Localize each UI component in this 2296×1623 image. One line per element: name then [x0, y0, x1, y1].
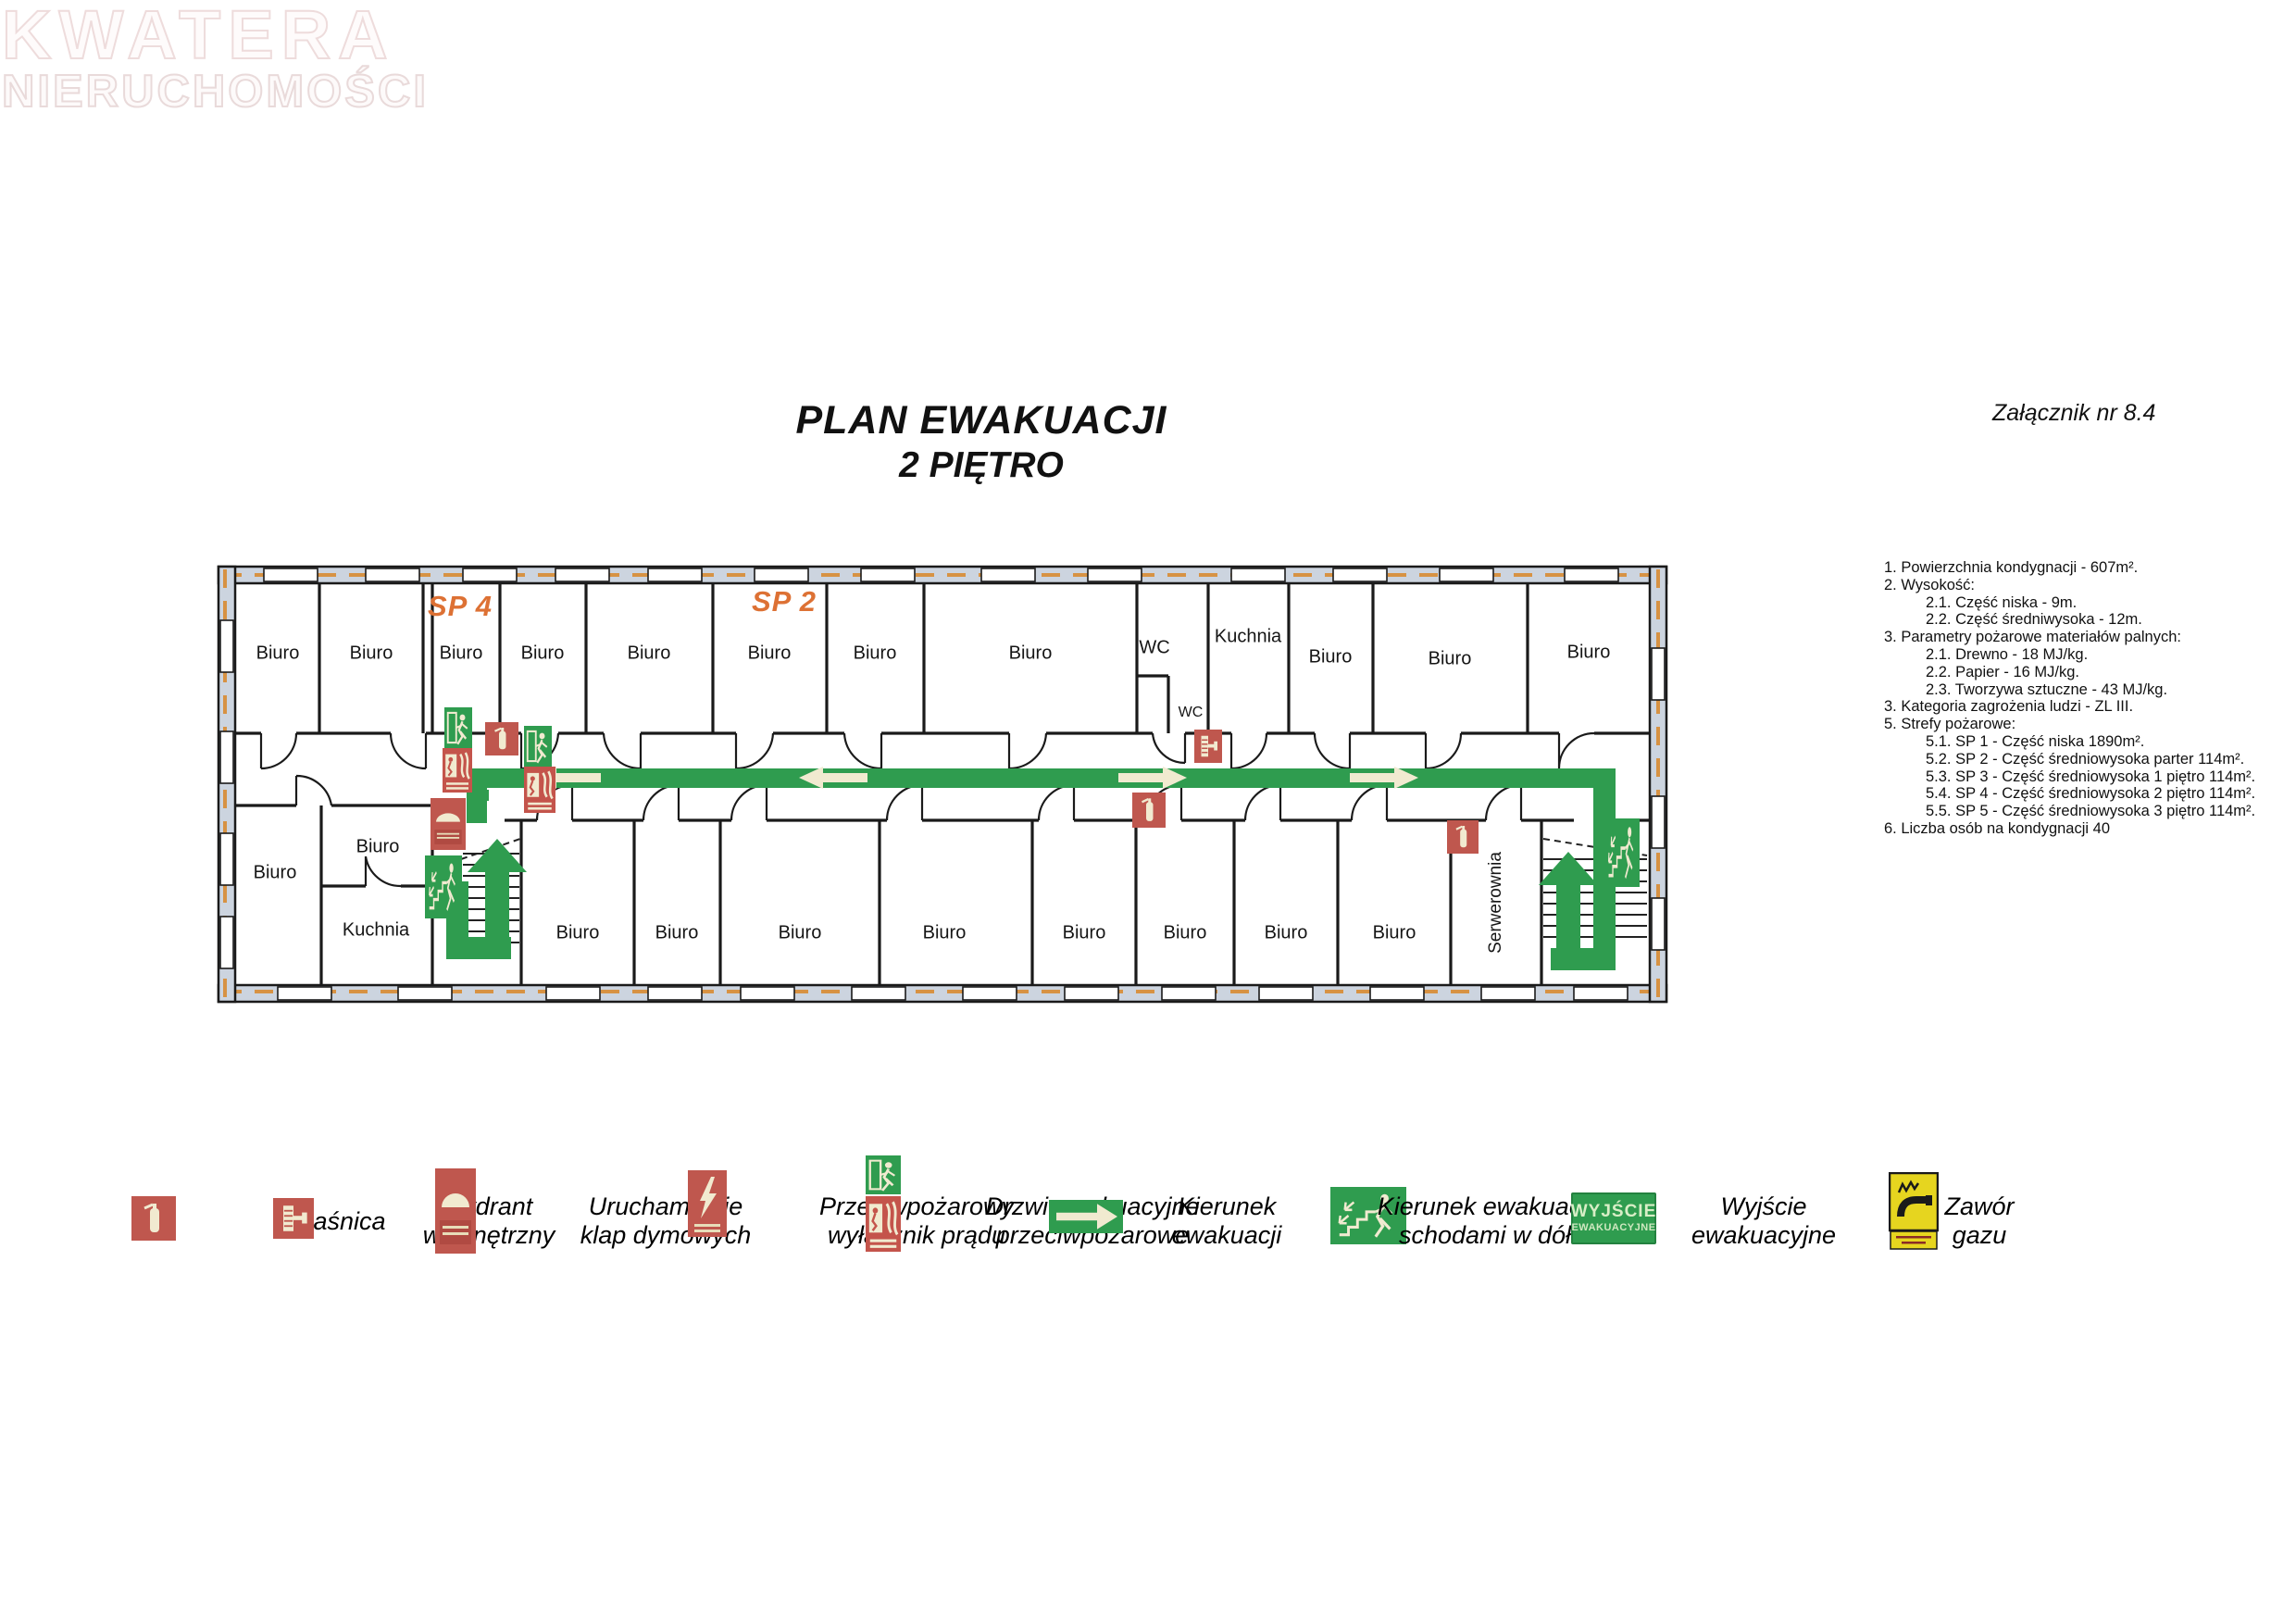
- room-label: Biuro: [1265, 923, 1308, 944]
- room-label: Biuro: [556, 923, 600, 944]
- fire-door-icon: [443, 748, 472, 793]
- note-line: 2.1. Część niska - 9m.: [1884, 594, 2273, 612]
- room-label: WC: [1139, 638, 1169, 659]
- legend-label: Kierunekewakuacji: [1172, 1192, 1282, 1251]
- fire-extinguisher-icon: [131, 1196, 176, 1241]
- note-line: 1. Powierzchnia kondygnacji - 607m².: [1884, 559, 2273, 577]
- fire-extinguisher-icon: [485, 722, 518, 755]
- hydrant-icon: [1194, 730, 1222, 763]
- room-label: Biuro: [254, 863, 297, 884]
- room-label: Biuro: [256, 643, 300, 665]
- attachment-label: Załącznik nr 8.4: [1992, 400, 2155, 427]
- note-line: 5.1. SP 1 - Część niska 1890m².: [1884, 733, 2273, 751]
- legend: Gaśnica Hydrantwewnętrzny Uruchamianiekl…: [120, 1155, 2157, 1285]
- gas-valve-icon: [1889, 1172, 1939, 1250]
- note-line: 3. Kategoria zagrożenia ludzi - ZL III.: [1884, 698, 2273, 716]
- room-label: Biuro: [350, 643, 393, 665]
- zone-label-sp2: SP 2: [752, 585, 817, 618]
- room-label: Kuchnia: [343, 920, 409, 942]
- room-label: Biuro: [779, 923, 822, 944]
- fire-door-icon: [866, 1196, 901, 1252]
- note-line: 5. Strefy pożarowe:: [1884, 716, 2273, 733]
- note-line: 5.2. SP 2 - Część średniowysoka parter 1…: [1884, 751, 2273, 768]
- note-line: 2.2. Część średniwysoka - 12m.: [1884, 611, 2273, 629]
- evac-door-icon: [524, 726, 552, 767]
- note-line: 5.3. SP 3 - Część średniowysoka 1 piętro…: [1884, 768, 2273, 786]
- room-label: Biuro: [1567, 643, 1611, 664]
- room-label: Biuro: [521, 643, 565, 665]
- stairs-down-icon: [425, 855, 462, 918]
- evac-door-icon: [866, 1155, 901, 1194]
- room-label: Biuro: [854, 643, 897, 665]
- room-label: Biuro: [748, 643, 792, 665]
- note-line: 5.5. SP 5 - Część średniowysoka 3 piętro…: [1884, 803, 2273, 820]
- room-label: Biuro: [1373, 923, 1416, 944]
- room-label: Biuro: [440, 643, 483, 665]
- room-label: Kuchnia: [1215, 627, 1281, 648]
- room-label: Biuro: [1009, 643, 1053, 665]
- evac-exit-sign: WYJŚCIE EWAKUACYJNE: [1571, 1192, 1656, 1244]
- internal-hydrant-icon: [273, 1198, 314, 1239]
- legend-label: Zawórgazu: [1944, 1192, 2014, 1251]
- note-line: 2.1. Drewno - 18 MJ/kg.: [1884, 646, 2273, 664]
- legend-label: Wyjścieewakuacyjne: [1691, 1192, 1836, 1251]
- title-line2: 2 PIĘTRO: [750, 445, 1213, 486]
- fire-extinguisher-icon: [1447, 820, 1479, 854]
- note-line: 2. Wysokość:: [1884, 577, 2273, 594]
- note-line: 6. Liczba osób na kondygnacji 40: [1884, 820, 2273, 838]
- evacuation-plan-page: KWATERA NIERUCHOMOŚCI PLAN EWAKUACJI 2 P…: [0, 0, 2296, 1623]
- page-title: PLAN EWAKUACJI 2 PIĘTRO: [750, 398, 1213, 486]
- stairs-down-icon: [1604, 818, 1640, 887]
- legend-label: Kierunek ewakuacjischodami w dół: [1378, 1192, 1593, 1251]
- room-label: Biuro: [1063, 923, 1106, 944]
- smoke-flap-icon: [435, 1168, 476, 1254]
- fire-extinguisher-icon: [1132, 793, 1166, 828]
- room-label: Biuro: [1309, 647, 1353, 668]
- evac-direction-arrow-icon: [1049, 1200, 1123, 1233]
- fire-door-icon: [524, 767, 555, 813]
- room-label: Serwerownia: [1486, 852, 1506, 954]
- note-line: 3. Parametry pożarowe materiałów palnych…: [1884, 629, 2273, 646]
- title-line1: PLAN EWAKUACJI: [750, 398, 1213, 443]
- room-label: Biuro: [655, 923, 699, 944]
- room-label: Biuro: [1429, 649, 1472, 670]
- stairs: [461, 839, 1647, 944]
- smoke-flap-icon: [430, 798, 466, 850]
- evac-door-icon: [444, 707, 472, 748]
- note-line: 2.2. Papier - 16 MJ/kg.: [1884, 664, 2273, 681]
- fire-power-switch-icon: [688, 1170, 727, 1237]
- note-line: 5.4. SP 4 - Część średniowysoka 2 piętro…: [1884, 785, 2273, 803]
- room-label: Biuro: [628, 643, 671, 665]
- room-label: WC: [1179, 705, 1204, 721]
- zone-label-sp4: SP 4: [428, 590, 493, 623]
- notes-block: 1. Powierzchnia kondygnacji - 607m². 2. …: [1884, 559, 2273, 838]
- room-label: Biuro: [923, 923, 967, 944]
- note-line: 2.3. Tworzywa sztuczne - 43 MJ/kg.: [1884, 681, 2273, 699]
- room-label: Biuro: [1164, 923, 1207, 944]
- room-label: Biuro: [356, 837, 400, 858]
